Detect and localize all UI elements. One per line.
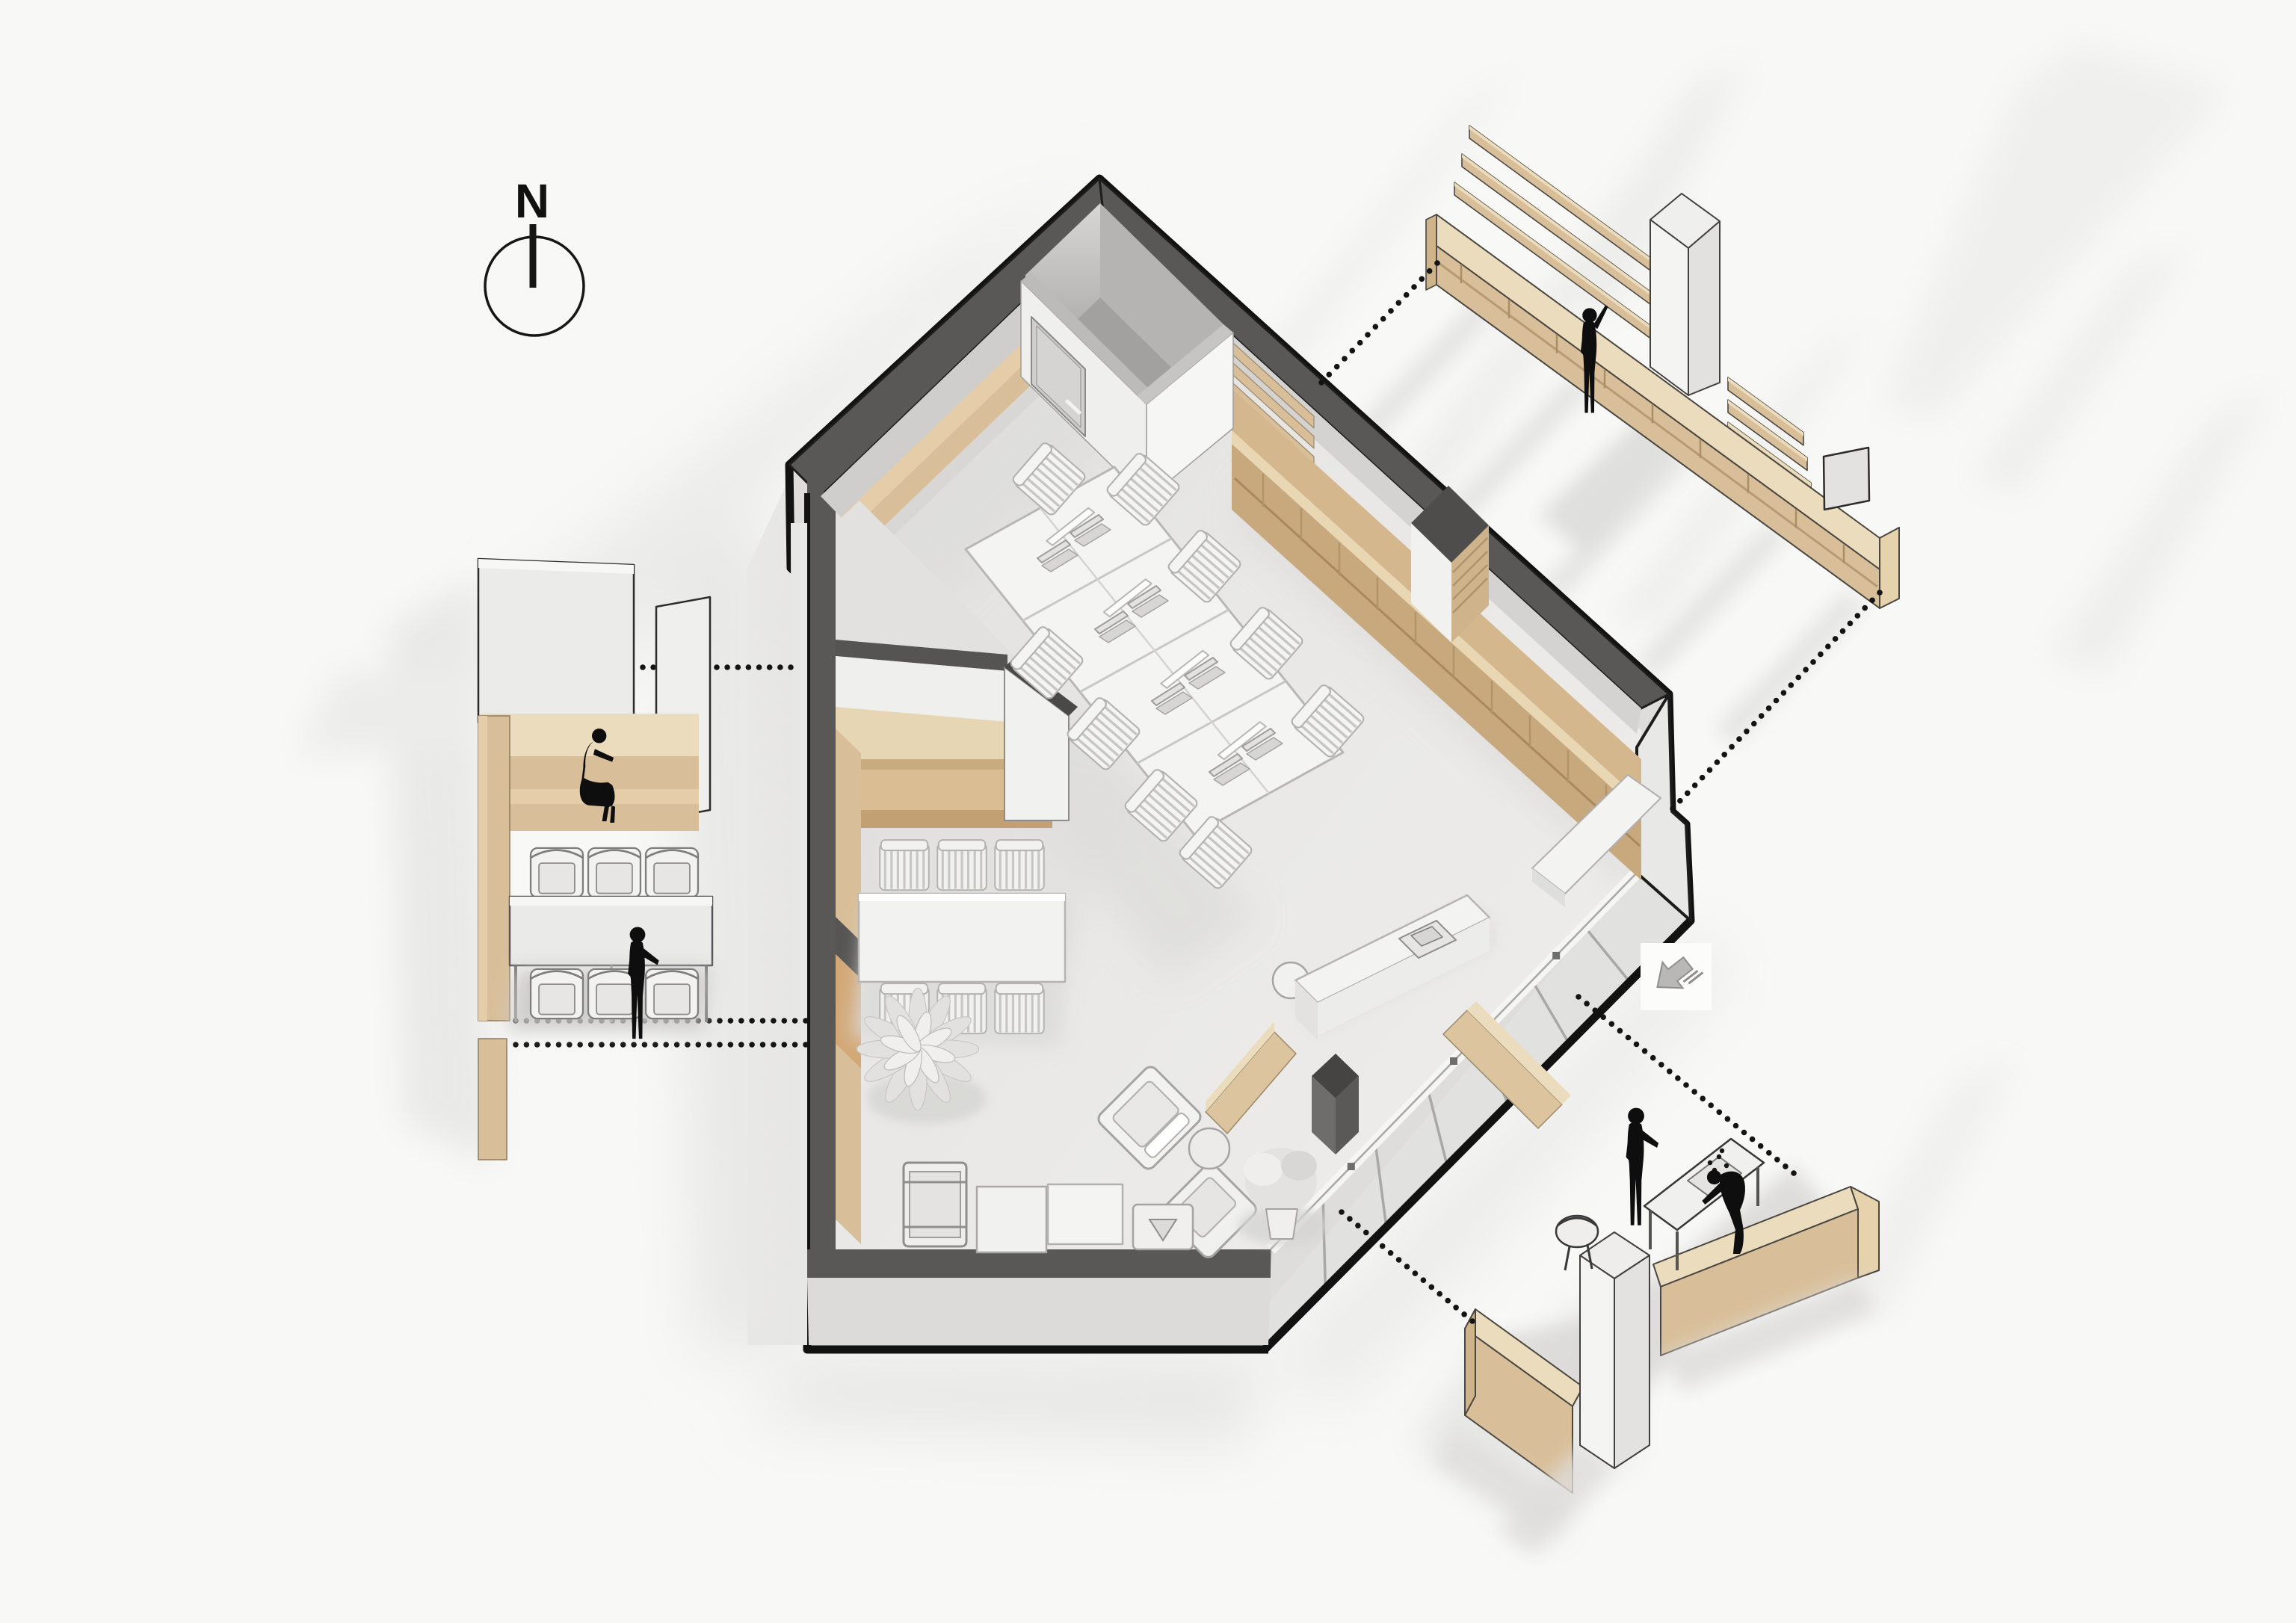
svg-text:N: N: [515, 174, 549, 228]
